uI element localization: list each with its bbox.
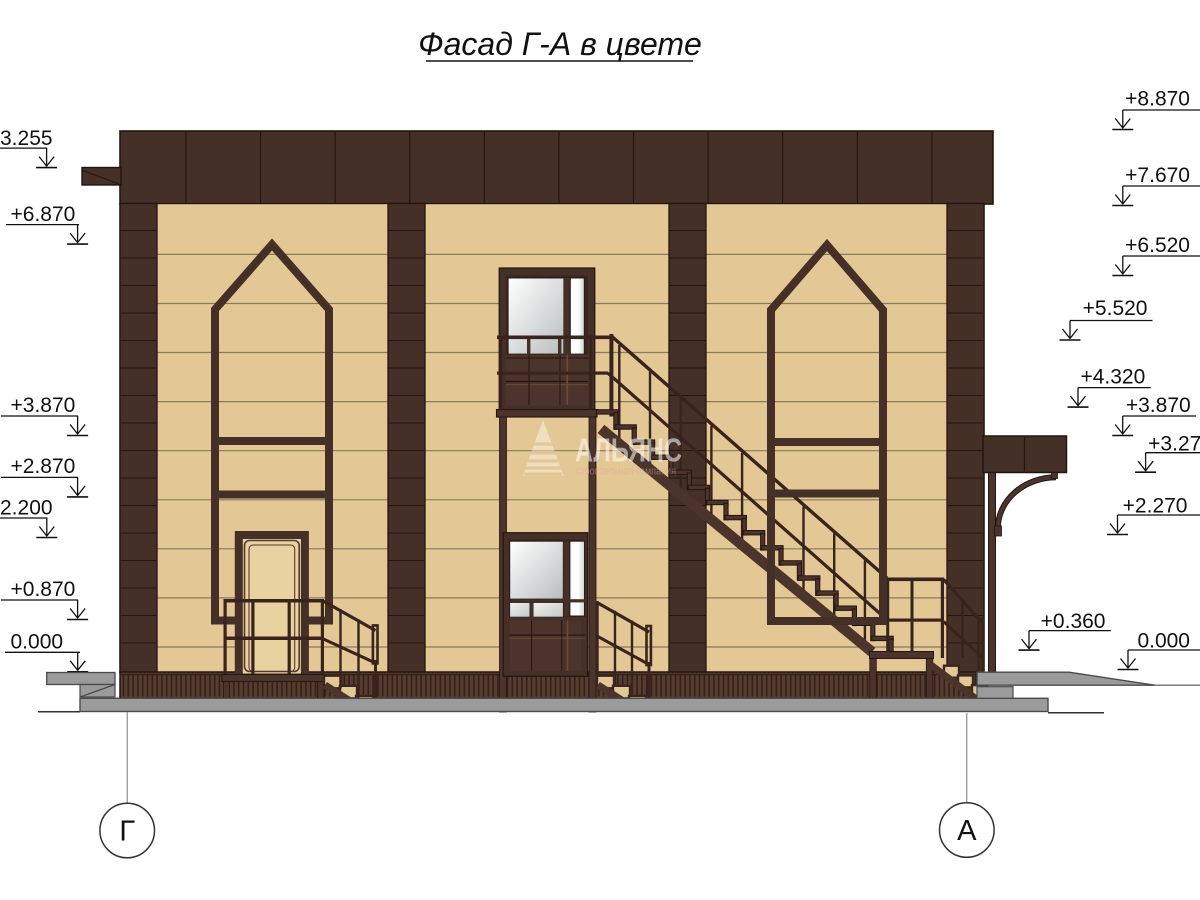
svg-text:А: А <box>957 815 977 847</box>
svg-text:0.000: 0.000 <box>1137 630 1190 653</box>
svg-text:+6.520: +6.520 <box>1125 234 1190 257</box>
svg-text:3.255: 3.255 <box>0 127 53 150</box>
svg-text:+5.520: +5.520 <box>1083 297 1148 320</box>
svg-text:+6.870: +6.870 <box>11 203 76 226</box>
svg-text:+0.870: +0.870 <box>11 578 76 601</box>
svg-text:Фасад Г-А в цвете: Фасад Г-А в цвете <box>418 26 702 62</box>
svg-text:+3.870: +3.870 <box>1126 394 1191 417</box>
svg-text:+8.870: +8.870 <box>1125 88 1190 111</box>
svg-text:АЛЬЯНС: АЛЬЯНС <box>575 432 682 469</box>
svg-text:строительная компания: строительная компания <box>576 466 676 478</box>
svg-text:0.000: 0.000 <box>11 631 64 654</box>
svg-text:2.200: 2.200 <box>0 497 53 520</box>
svg-text:+0.360: +0.360 <box>1041 610 1106 633</box>
svg-text:+2.270: +2.270 <box>1123 495 1188 518</box>
svg-text:+3.870: +3.870 <box>11 394 76 417</box>
svg-text:+2.870: +2.870 <box>11 455 76 478</box>
svg-text:+7.670: +7.670 <box>1125 164 1190 187</box>
svg-text:+4.320: +4.320 <box>1080 365 1145 388</box>
svg-text:Г: Г <box>119 816 135 848</box>
